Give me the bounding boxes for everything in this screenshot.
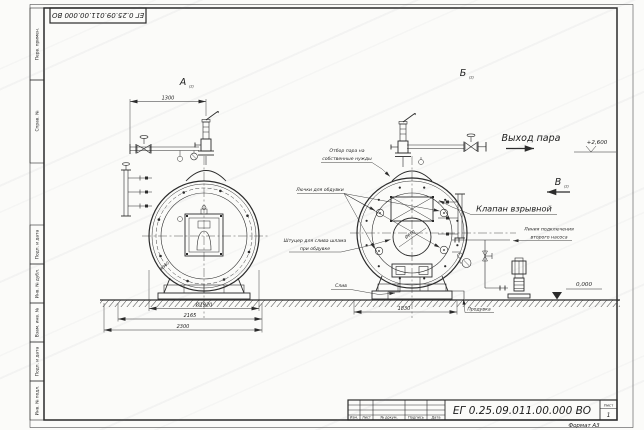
dim-2165: 2165 xyxy=(184,313,197,319)
side-column: Перв. примен. Справ. № Подп. и дата Инв.… xyxy=(30,8,44,420)
view-v-title: В xyxy=(555,177,562,188)
pump xyxy=(508,258,530,298)
view-b-title: Б xyxy=(460,68,467,79)
dim-2300: 2300 xyxy=(177,324,190,330)
burner-door xyxy=(178,206,224,257)
side-label-podp-data-1: Подп. и дата xyxy=(35,230,41,260)
side-label-perv-primen: Перв. примен. xyxy=(35,28,41,60)
elevation-floor: 0,000 xyxy=(552,282,602,300)
tb-col-izm: Изм. xyxy=(350,416,358,420)
radius-label: R960 xyxy=(159,260,170,271)
tb-sheet-label: Лист xyxy=(604,403,614,408)
drain-blowdown-pipes xyxy=(388,277,464,299)
view-a-title: А xyxy=(179,77,187,88)
elevation-floor-value: 0,000 xyxy=(576,282,592,288)
own-needs-line2: собственные нужды xyxy=(322,156,372,162)
side-label-inv-podl: Инв. № подл. xyxy=(35,386,41,416)
drain-label: Слив xyxy=(335,283,347,289)
sludge-line2: при обдувке xyxy=(300,246,330,252)
safety-valve-front xyxy=(195,111,218,165)
steam-outlet-label: Выход пара xyxy=(502,133,561,144)
title-block: Изм. Лист № докум. Подпись Дата ЕГ 0.25.… xyxy=(348,400,617,429)
front-steam-piping xyxy=(130,111,218,165)
second-pump-line1: Линия подключения xyxy=(523,227,574,233)
annotations: А (2) Б (2) В (2) Выход пара +2,600 0,00… xyxy=(179,68,616,313)
view-a-ref: (2) xyxy=(189,85,194,89)
second-pump-callout: Линия подключения второго насоса xyxy=(513,227,574,241)
tb-col-dokum: № докум. xyxy=(380,416,397,420)
drawing-sheet: Перв. примен. Справ. № Подп. и дата Инв.… xyxy=(0,0,644,430)
dim-1300: 1300 xyxy=(162,96,175,102)
drain-callout: Слив xyxy=(331,283,395,295)
own-needs-callout: Отбор пара на собственные нужды xyxy=(321,148,390,177)
format-label: Формат А3 xyxy=(568,423,600,429)
view-v-ref: (2) xyxy=(564,185,569,189)
second-pump-line2: второго насоса xyxy=(530,236,567,241)
blowdown-label: Продувка xyxy=(467,307,491,313)
tb-sheet-number: 1 xyxy=(607,412,611,419)
sludge-line1: Штуцер для слива шлама xyxy=(284,238,347,244)
sludge-callout: Штуцер для слива шлама при обдувке xyxy=(284,238,391,252)
dim-diameter: Ø1920 xyxy=(195,302,213,309)
tb-col-list: Лист xyxy=(362,416,371,420)
level-gauge-front xyxy=(121,163,152,216)
hatches-label: Лючки для обдувки xyxy=(295,187,344,193)
own-needs-line1: Отбор пара на xyxy=(329,148,364,154)
elevation-steam-value: +2,600 xyxy=(587,140,608,146)
front-view: R960 xyxy=(121,111,268,318)
side-label-podp-data-2: Подп. и дата xyxy=(35,347,41,377)
side-label-sprav-no: Справ. № xyxy=(35,110,41,131)
explosion-valve-callout: Клапан взрывной xyxy=(439,201,557,215)
elevation-steam: +2,600 xyxy=(574,140,616,152)
side-label-vzam-inv: Взам. инв. № xyxy=(35,307,41,337)
ground xyxy=(100,300,620,307)
rear-view: Ø650 xyxy=(350,113,516,318)
technical-drawing: Перв. примен. Справ. № Подп. и дата Инв.… xyxy=(0,0,644,430)
side-label-inv-dubl: Инв. № дубл. xyxy=(35,269,41,298)
explosion-valve-label: Клапан взрывной xyxy=(476,204,552,214)
tb-designation: ЕГ 0.25.09.011.00.000 ВО xyxy=(453,405,591,417)
top-stamp: ЕГ 0.25.09.011.00.000 ВО xyxy=(50,8,146,23)
rear-steam-piping xyxy=(391,113,486,167)
view-b-ref: (2) xyxy=(469,76,474,80)
stamp-designation: ЕГ 0.25.09.011.00.000 ВО xyxy=(51,11,144,19)
safety-valve-rear xyxy=(391,113,415,167)
sheet-frame xyxy=(30,5,633,428)
tb-col-podpis: Подпись xyxy=(408,416,424,420)
pump-assembly xyxy=(452,238,530,299)
dim-1830: 1830 xyxy=(398,306,411,312)
tb-col-data: Дата xyxy=(431,416,440,420)
